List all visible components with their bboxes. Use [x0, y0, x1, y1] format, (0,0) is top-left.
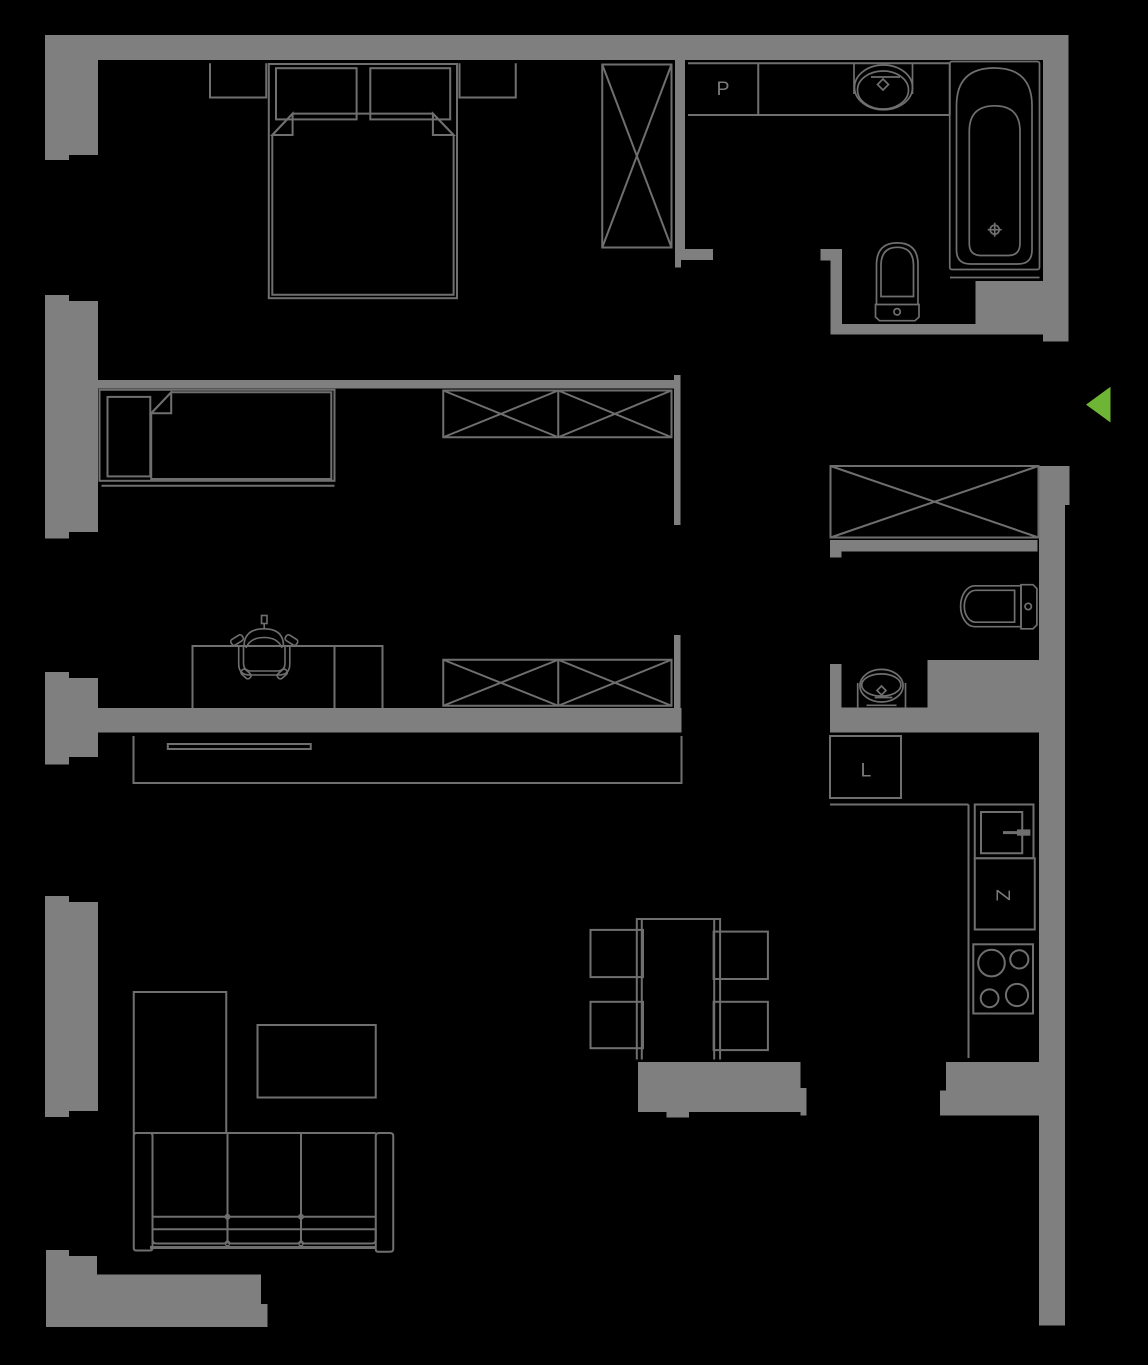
svg-text:L: L [861, 760, 872, 782]
svg-text:Z: Z [992, 889, 1014, 901]
svg-text:P: P [717, 78, 730, 100]
